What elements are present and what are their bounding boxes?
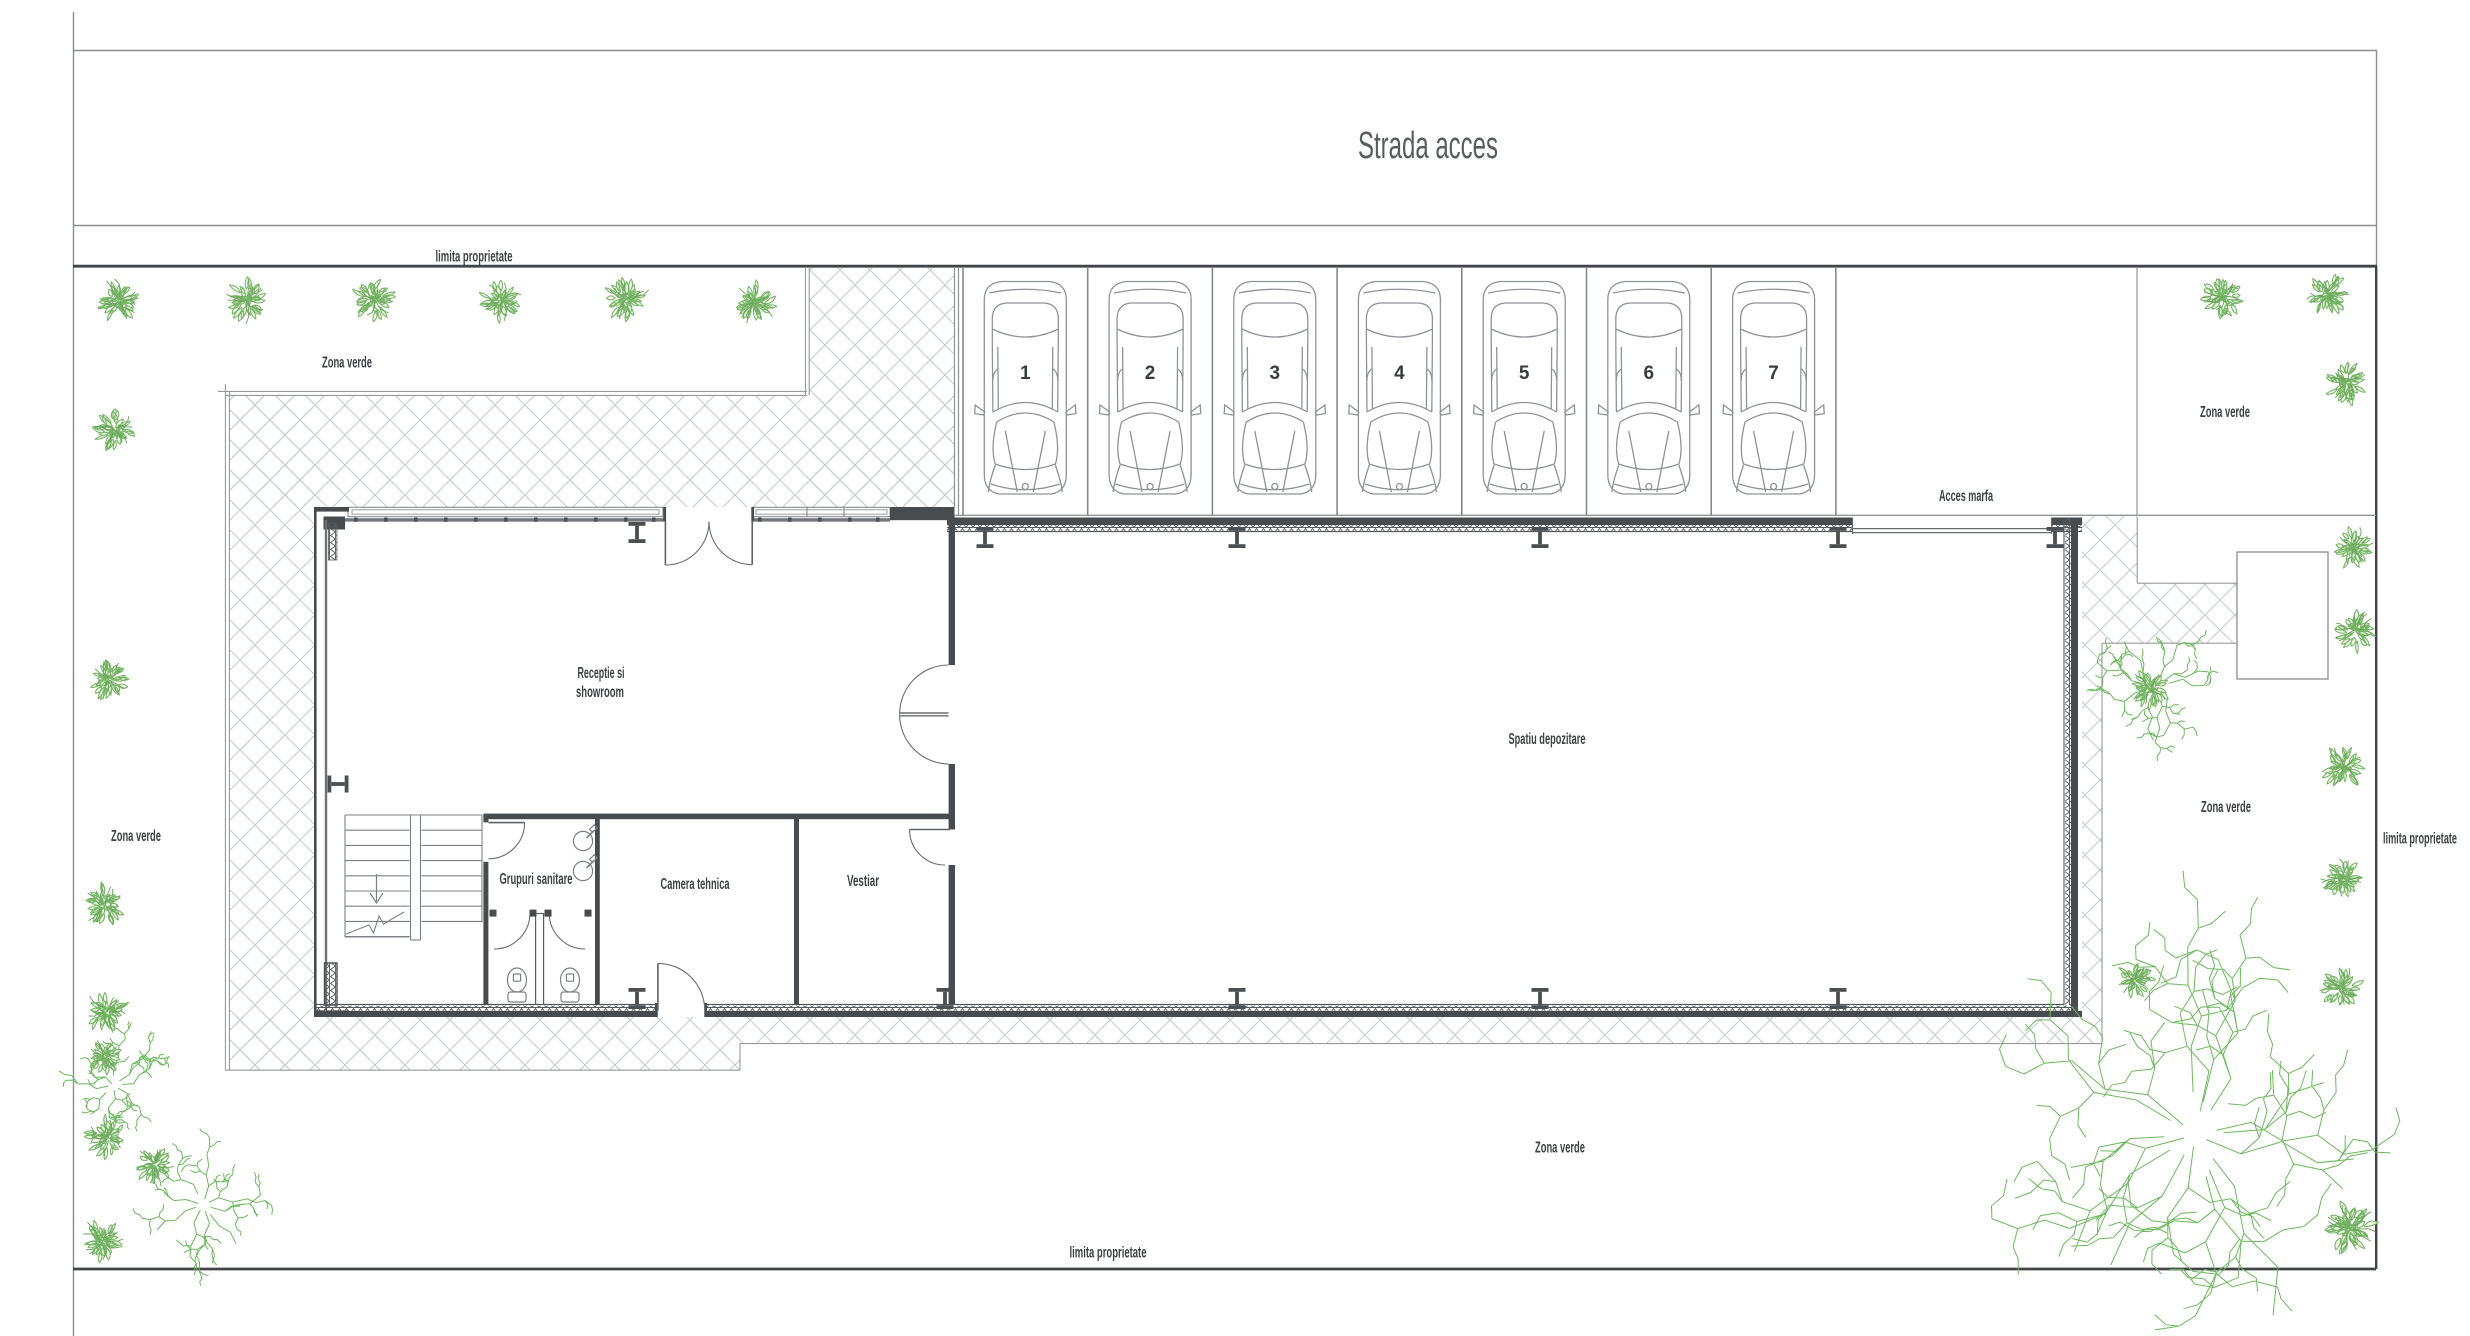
svg-text:limita proprietate: limita proprietate [1070,1245,1147,1262]
svg-text:Spatiu depozitare: Spatiu depozitare [1509,731,1586,748]
svg-text:Strada acces: Strada acces [1358,125,1498,167]
svg-text:1: 1 [1020,363,1031,384]
svg-text:6: 6 [1644,363,1655,384]
svg-text:limita proprietate: limita proprietate [2383,831,2457,848]
svg-text:Zona verde: Zona verde [2200,404,2250,421]
svg-text:Vestiar: Vestiar [847,873,879,890]
svg-text:2: 2 [1145,363,1156,384]
svg-text:5: 5 [1519,363,1530,384]
svg-text:Zona verde: Zona verde [322,355,372,372]
svg-text:Camera tehnica: Camera tehnica [661,876,730,893]
svg-text:Zona verde: Zona verde [111,828,161,845]
svg-text:4: 4 [1394,363,1405,384]
svg-text:Zona verde: Zona verde [1535,1140,1585,1157]
svg-text:7: 7 [1768,363,1779,384]
svg-text:showroom: showroom [576,684,624,701]
svg-text:3: 3 [1270,363,1281,384]
svg-text:Zona verde: Zona verde [2201,799,2251,816]
svg-text:Acces marfa: Acces marfa [1939,488,1993,505]
svg-text:Grupuri sanitare: Grupuri sanitare [500,871,573,888]
svg-text:limita proprietate: limita proprietate [436,249,513,266]
svg-text:Receptie si: Receptie si [578,665,625,682]
